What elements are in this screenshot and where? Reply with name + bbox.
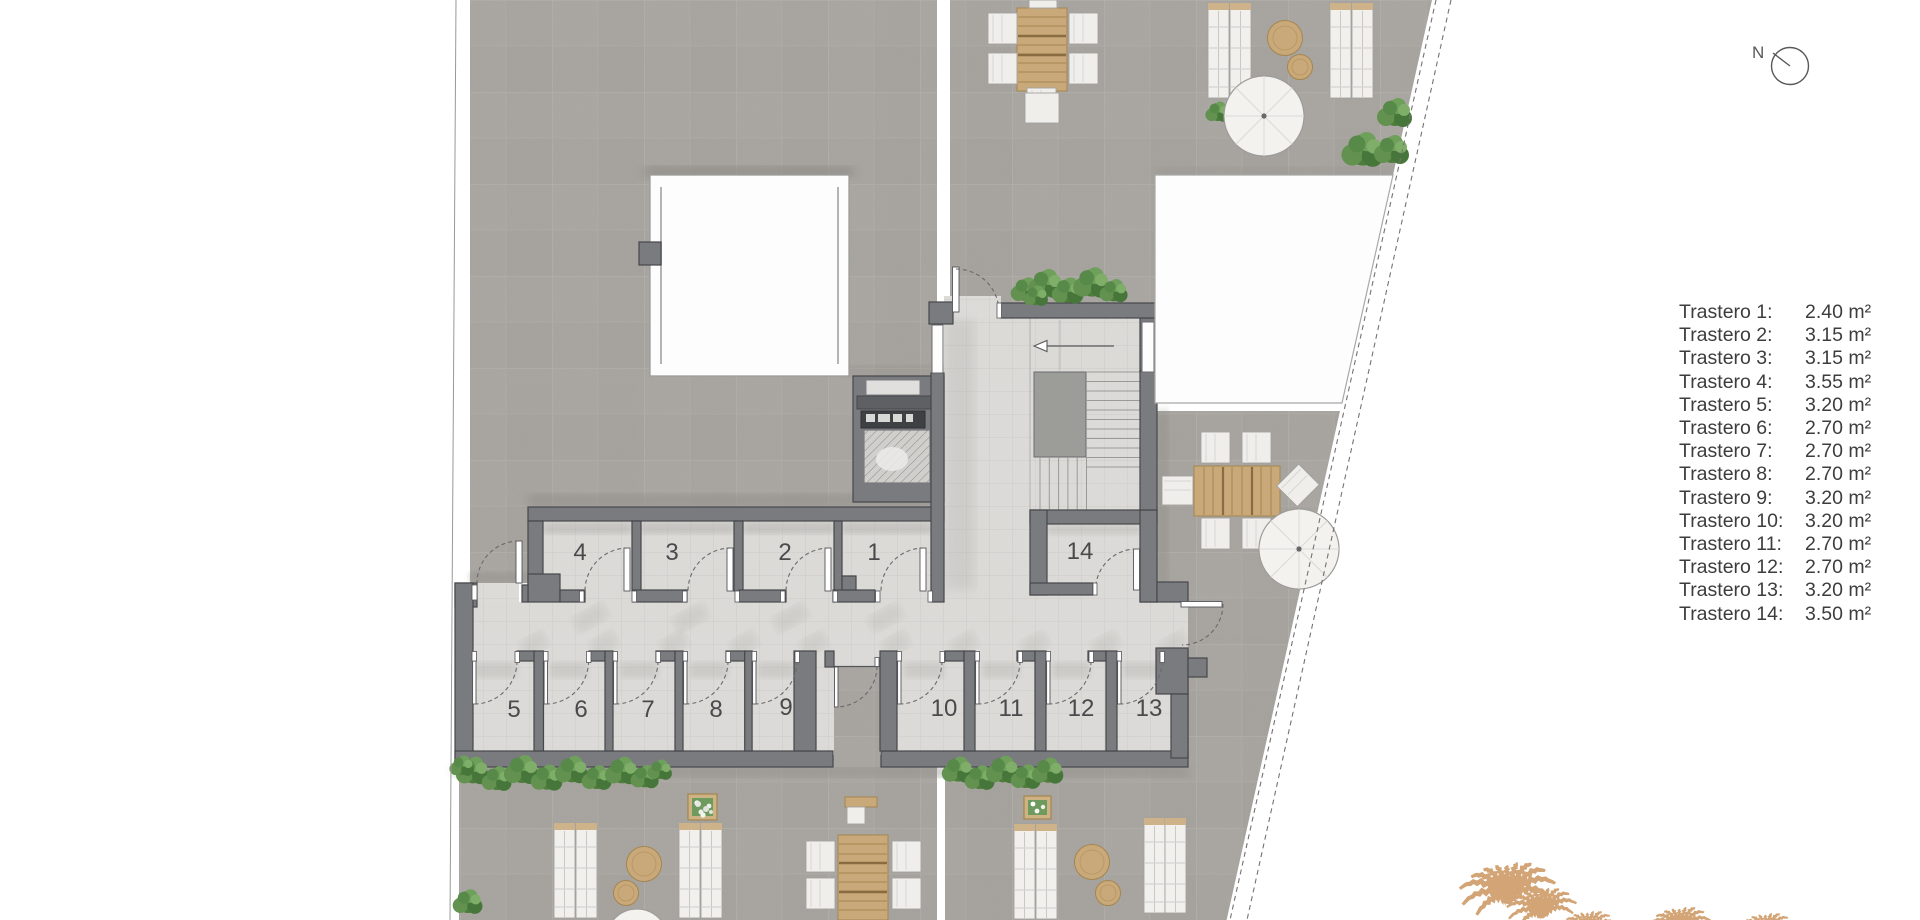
svg-text:11: 11: [999, 695, 1024, 722]
svg-text:Trastero 9:: Trastero 9:: [1679, 487, 1773, 509]
svg-text:Trastero 3:: Trastero 3:: [1679, 347, 1773, 369]
svg-text:3.15 m²: 3.15 m²: [1805, 324, 1872, 346]
svg-text:3.20 m²: 3.20 m²: [1805, 510, 1872, 532]
svg-text:2.40 m²: 2.40 m²: [1805, 301, 1872, 323]
svg-text:2.70 m²: 2.70 m²: [1805, 417, 1872, 439]
svg-text:3.50 m²: 3.50 m²: [1805, 603, 1872, 625]
svg-text:12: 12: [1068, 695, 1095, 722]
svg-text:13: 13: [1136, 695, 1163, 722]
svg-text:6: 6: [574, 696, 587, 723]
svg-text:2.70 m²: 2.70 m²: [1805, 533, 1872, 555]
svg-text:1: 1: [867, 539, 880, 566]
svg-text:2.70 m²: 2.70 m²: [1805, 440, 1872, 462]
svg-text:14: 14: [1067, 538, 1094, 565]
svg-text:3: 3: [665, 539, 678, 566]
svg-text:N: N: [1752, 43, 1764, 62]
svg-text:Trastero 2:: Trastero 2:: [1679, 324, 1773, 346]
svg-text:Trastero 13:: Trastero 13:: [1679, 579, 1783, 601]
svg-text:Trastero 12:: Trastero 12:: [1679, 556, 1783, 578]
svg-text:3.55 m²: 3.55 m²: [1805, 371, 1872, 393]
svg-text:3.20 m²: 3.20 m²: [1805, 394, 1872, 416]
svg-text:3.20 m²: 3.20 m²: [1805, 579, 1872, 601]
svg-text:3.15 m²: 3.15 m²: [1805, 347, 1872, 369]
svg-text:2: 2: [778, 539, 791, 566]
svg-text:Trastero 14:: Trastero 14:: [1679, 603, 1783, 625]
svg-text:2.70 m²: 2.70 m²: [1805, 556, 1872, 578]
svg-text:Trastero 4:: Trastero 4:: [1679, 371, 1773, 393]
svg-text:2.70 m²: 2.70 m²: [1805, 463, 1872, 485]
svg-text:Trastero 11:: Trastero 11:: [1679, 533, 1782, 555]
svg-text:10: 10: [931, 695, 958, 722]
svg-text:Trastero 10:: Trastero 10:: [1679, 510, 1783, 532]
svg-text:Trastero 1:: Trastero 1:: [1679, 301, 1773, 323]
svg-text:7: 7: [641, 696, 654, 723]
svg-text:3.20 m²: 3.20 m²: [1805, 487, 1872, 509]
svg-text:4: 4: [573, 539, 586, 566]
svg-text:Trastero 5:: Trastero 5:: [1679, 394, 1773, 416]
svg-text:8: 8: [709, 696, 722, 723]
svg-text:Trastero 8:: Trastero 8:: [1679, 463, 1773, 485]
svg-text:5: 5: [507, 696, 520, 723]
svg-text:Trastero 6:: Trastero 6:: [1679, 417, 1773, 439]
svg-text:Trastero 7:: Trastero 7:: [1679, 440, 1773, 462]
svg-text:9: 9: [779, 694, 792, 721]
